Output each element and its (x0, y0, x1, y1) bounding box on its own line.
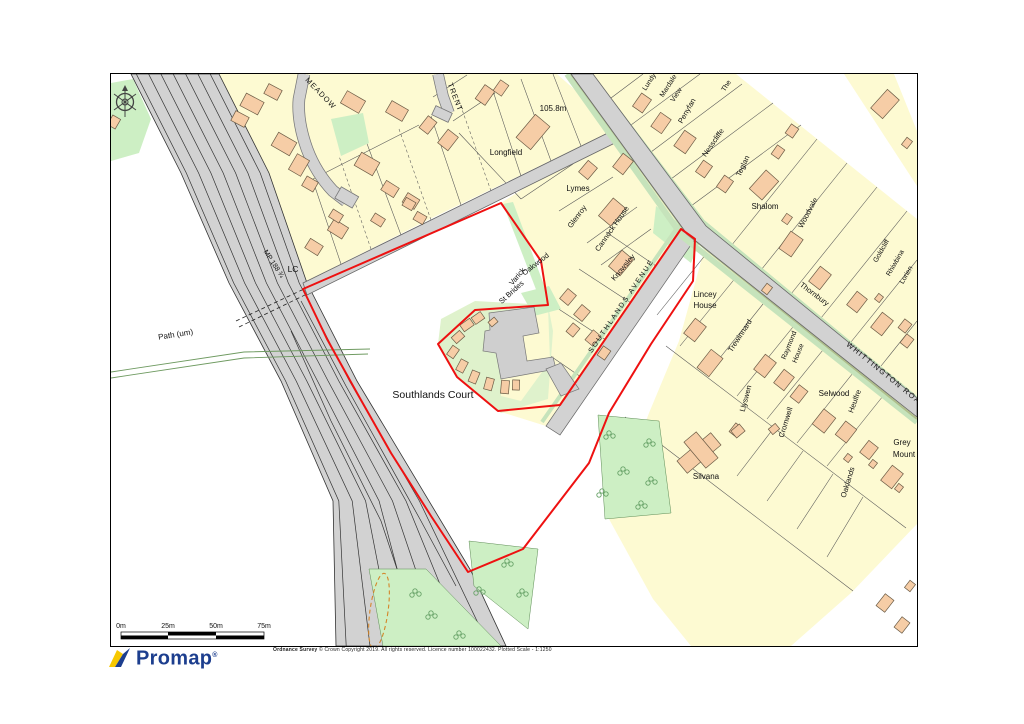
scale-bar: 0m25m50m75m (116, 623, 271, 639)
building (876, 594, 894, 613)
copyright-rest: © Crown Copyright 2019. All rights reser… (317, 647, 551, 653)
building (500, 380, 509, 394)
scale-tick-label: 75m (257, 623, 271, 630)
promap-logo: Promap® (106, 645, 218, 669)
site-plan-map: MEADOWTRENT105.8mLongfieldLymesGlenroyCa… (111, 74, 917, 646)
map-label: Grey (893, 438, 910, 447)
map-label: Lymes (566, 184, 589, 193)
building (894, 617, 910, 633)
promap-logo-icon (106, 645, 133, 669)
registered-mark: ® (212, 652, 217, 659)
map-label: LC (288, 264, 299, 274)
building (512, 380, 519, 390)
map-label: Longfield (490, 148, 522, 157)
map-label: Mount (893, 450, 916, 459)
map-label: Path (um) (158, 327, 194, 341)
copyright-line: Ordnance Survey © Crown Copyright 2019. … (273, 647, 552, 653)
page: { "palette":{ "plot_fill":"#FDFAD2","bui… (0, 0, 1024, 724)
map-label: 105.8m (540, 104, 567, 113)
map-frame: MEADOWTRENT105.8mLongfieldLymesGlenroyCa… (110, 73, 918, 647)
scale-tick-label: 50m (209, 623, 223, 630)
map-label: House (693, 301, 717, 310)
scale-tick-labels: 0m25m50m75m (116, 623, 271, 630)
building (904, 580, 915, 591)
map-label: Shalom (751, 202, 778, 211)
copyright-bold: Ordnance Survey (273, 647, 317, 653)
map-label: Southlands Court (392, 389, 473, 401)
promap-logo-text: Promap® (136, 646, 218, 669)
map-label: Silvana (693, 472, 720, 481)
plot-strip-topright (844, 74, 917, 186)
map-label: Selwood (819, 389, 850, 398)
scale-tick-label: 0m (116, 623, 126, 630)
map-label: Lincey (693, 290, 716, 299)
scale-tick-label: 25m (161, 623, 175, 630)
